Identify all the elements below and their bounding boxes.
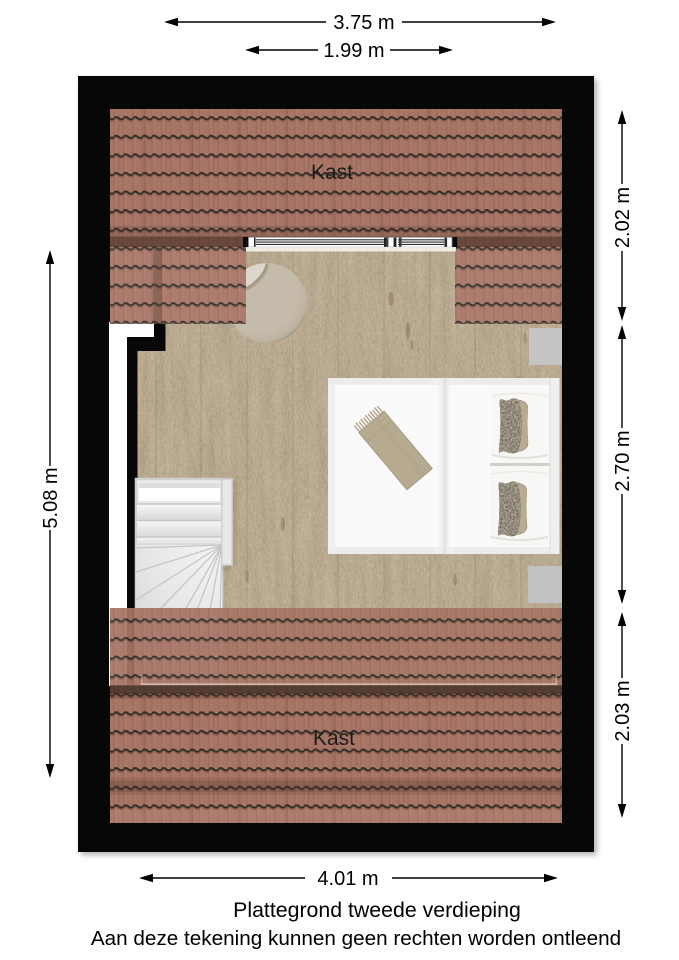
svg-text:4.01 m: 4.01 m [317,868,378,890]
svg-text:2.02 m: 2.02 m [612,187,634,248]
svg-text:Kast: Kast [311,161,353,184]
svg-text:Kast: Kast [313,727,355,750]
svg-text:2.03 m: 2.03 m [612,680,634,741]
svg-text:1.99 m: 1.99 m [323,40,384,62]
svg-text:2.70 m: 2.70 m [612,430,634,491]
svg-text:3.75 m: 3.75 m [333,12,394,34]
svg-text:5.08 m: 5.08 m [40,467,62,528]
svg-text:Aan deze tekening kunnen geen: Aan deze tekening kunnen geen rechten wo… [91,927,621,950]
svg-text:Plattegrond tweede verdieping: Plattegrond tweede verdieping [233,898,521,922]
